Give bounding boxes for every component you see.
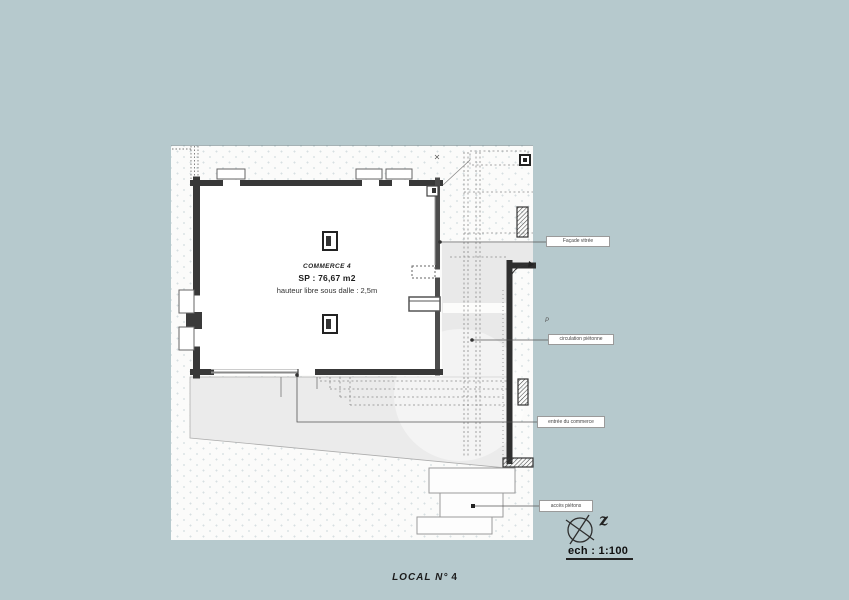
room-label-block: COMMERCE 4 SP : 76,67 m2 hauteur libre s… xyxy=(227,263,427,295)
annotation-entree-commerce: entrée du commerce xyxy=(537,416,605,428)
wall-niche xyxy=(409,297,440,311)
north-compass-icon xyxy=(566,515,594,544)
sheet-title: LOCAL N°4 xyxy=(0,567,849,585)
north-letter: z xyxy=(598,510,609,530)
floor-plan-canvas: COMMERCE 4 SP : 76,67 m2 hauteur libre s… xyxy=(0,0,849,600)
sheet-title-number: 4 xyxy=(451,572,457,583)
annotation-facade-vitree: Façade vitrée xyxy=(546,236,610,247)
sheet-title-label: LOCAL N° xyxy=(392,572,448,583)
entrance-steps xyxy=(417,468,515,534)
room-name: COMMERCE 4 xyxy=(227,263,427,270)
corner-detail xyxy=(427,186,438,196)
room-area: SP : 76,67 m2 xyxy=(227,273,427,283)
wall-stub xyxy=(186,312,202,329)
roof-access-square xyxy=(520,155,530,165)
room-height-note: hauteur libre sous dalle : 2,5m xyxy=(227,286,427,295)
scale-note: ech : 1:100 xyxy=(566,545,633,560)
parking-letter: P xyxy=(545,318,549,324)
annotation-acces-pietons: accès piétons xyxy=(539,500,593,512)
annotation-circulation-pietonne: circulation piétonne xyxy=(548,334,614,345)
plan-linework xyxy=(0,0,849,600)
